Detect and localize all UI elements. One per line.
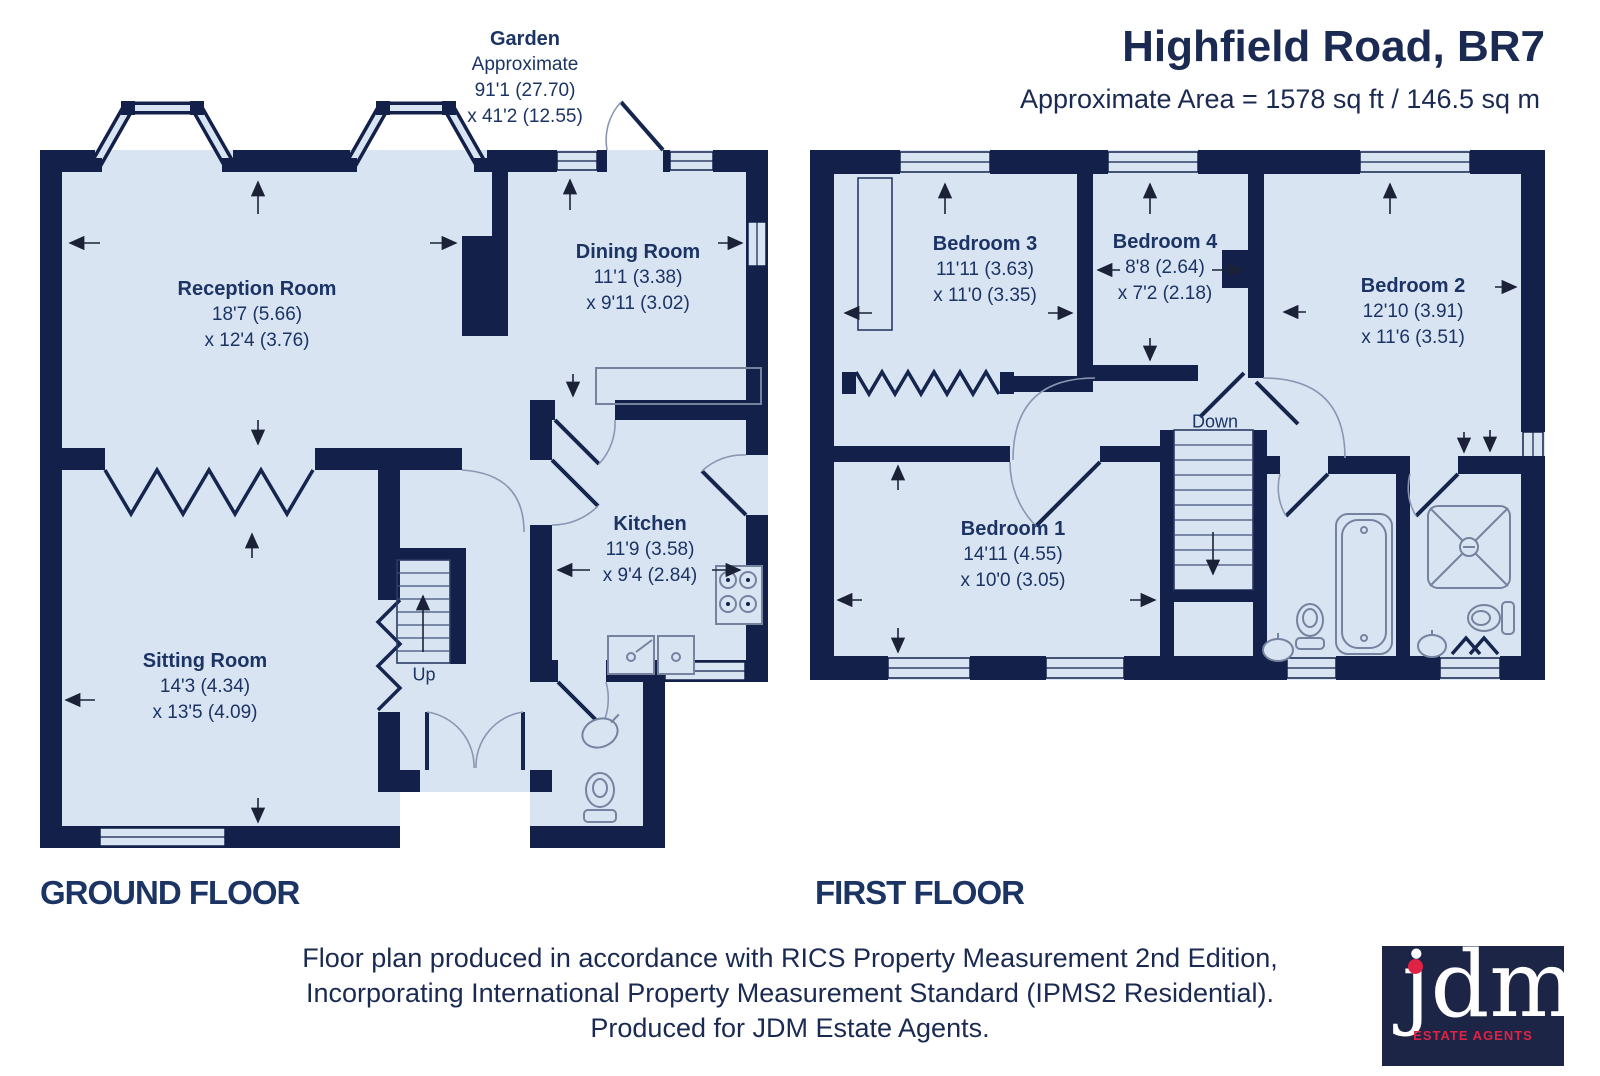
- page-title: Highfield Road, BR7: [1122, 22, 1545, 72]
- room-label-bedroom4: Bedroom 4 8'8 (2.64) x 7'2 (2.18): [1113, 229, 1217, 307]
- garden-label: Garden Approximate 91'1 (27.70) x 41'2 (…: [467, 26, 583, 130]
- floor-plan-drawing: .wall{fill:#13214a;} .room{fill:#d9e4f3;…: [0, 0, 1600, 1076]
- toilet-icon: [584, 773, 616, 822]
- chimney-breast: [462, 236, 508, 336]
- first-floor-label: FIRST FLOOR: [815, 874, 1024, 912]
- approximate-area: Approximate Area = 1578 sq ft / 146.5 sq…: [1020, 84, 1540, 115]
- toilet-icon: [1296, 604, 1324, 649]
- front-door: [606, 102, 663, 150]
- stove-icon: [716, 566, 762, 624]
- jdm-logo-dot: [1408, 959, 1423, 974]
- stairs-down-label: Down: [1192, 412, 1238, 433]
- toilet-icon: [1468, 602, 1514, 634]
- chimney-wall: [492, 172, 508, 236]
- room-label-dining: Dining Room 11'1 (3.38) x 9'11 (3.02): [576, 239, 700, 317]
- room-label-kitchen: Kitchen 11'9 (3.58) x 9'4 (2.84): [603, 511, 697, 589]
- room-label-bedroom2: Bedroom 2 12'10 (3.91) x 11'6 (3.51): [1361, 273, 1465, 351]
- disclaimer-text: Floor plan produced in accordance with R…: [240, 941, 1340, 1046]
- floor-plan-page: .wall{fill:#13214a;} .room{fill:#d9e4f3;…: [0, 0, 1600, 1076]
- room-label-sitting: Sitting Room 14'3 (4.34) x 13'5 (4.09): [143, 648, 267, 726]
- ground-floor-plan: [40, 101, 768, 848]
- shower-icon: [1428, 506, 1510, 588]
- room-label-bedroom1: Bedroom 1 14'11 (4.55) x 10'0 (3.05): [960, 516, 1065, 594]
- kitchen-sink-icon: [608, 636, 694, 674]
- room-label-reception: Reception Room 18'7 (5.66) x 12'4 (3.76): [178, 276, 337, 354]
- room-label-bedroom3: Bedroom 3 11'11 (3.63) x 11'0 (3.35): [933, 231, 1037, 309]
- jdm-logo-tagline: ESTATE AGENTS: [1382, 1028, 1564, 1043]
- jdm-logo-text: jdm: [1402, 930, 1577, 1040]
- jdm-logo: jdm ESTATE AGENTS: [1382, 946, 1564, 1066]
- stairs-up-label: Up: [412, 665, 435, 686]
- ground-floor-label: GROUND FLOOR: [40, 874, 299, 912]
- bath-icon: [1336, 514, 1392, 654]
